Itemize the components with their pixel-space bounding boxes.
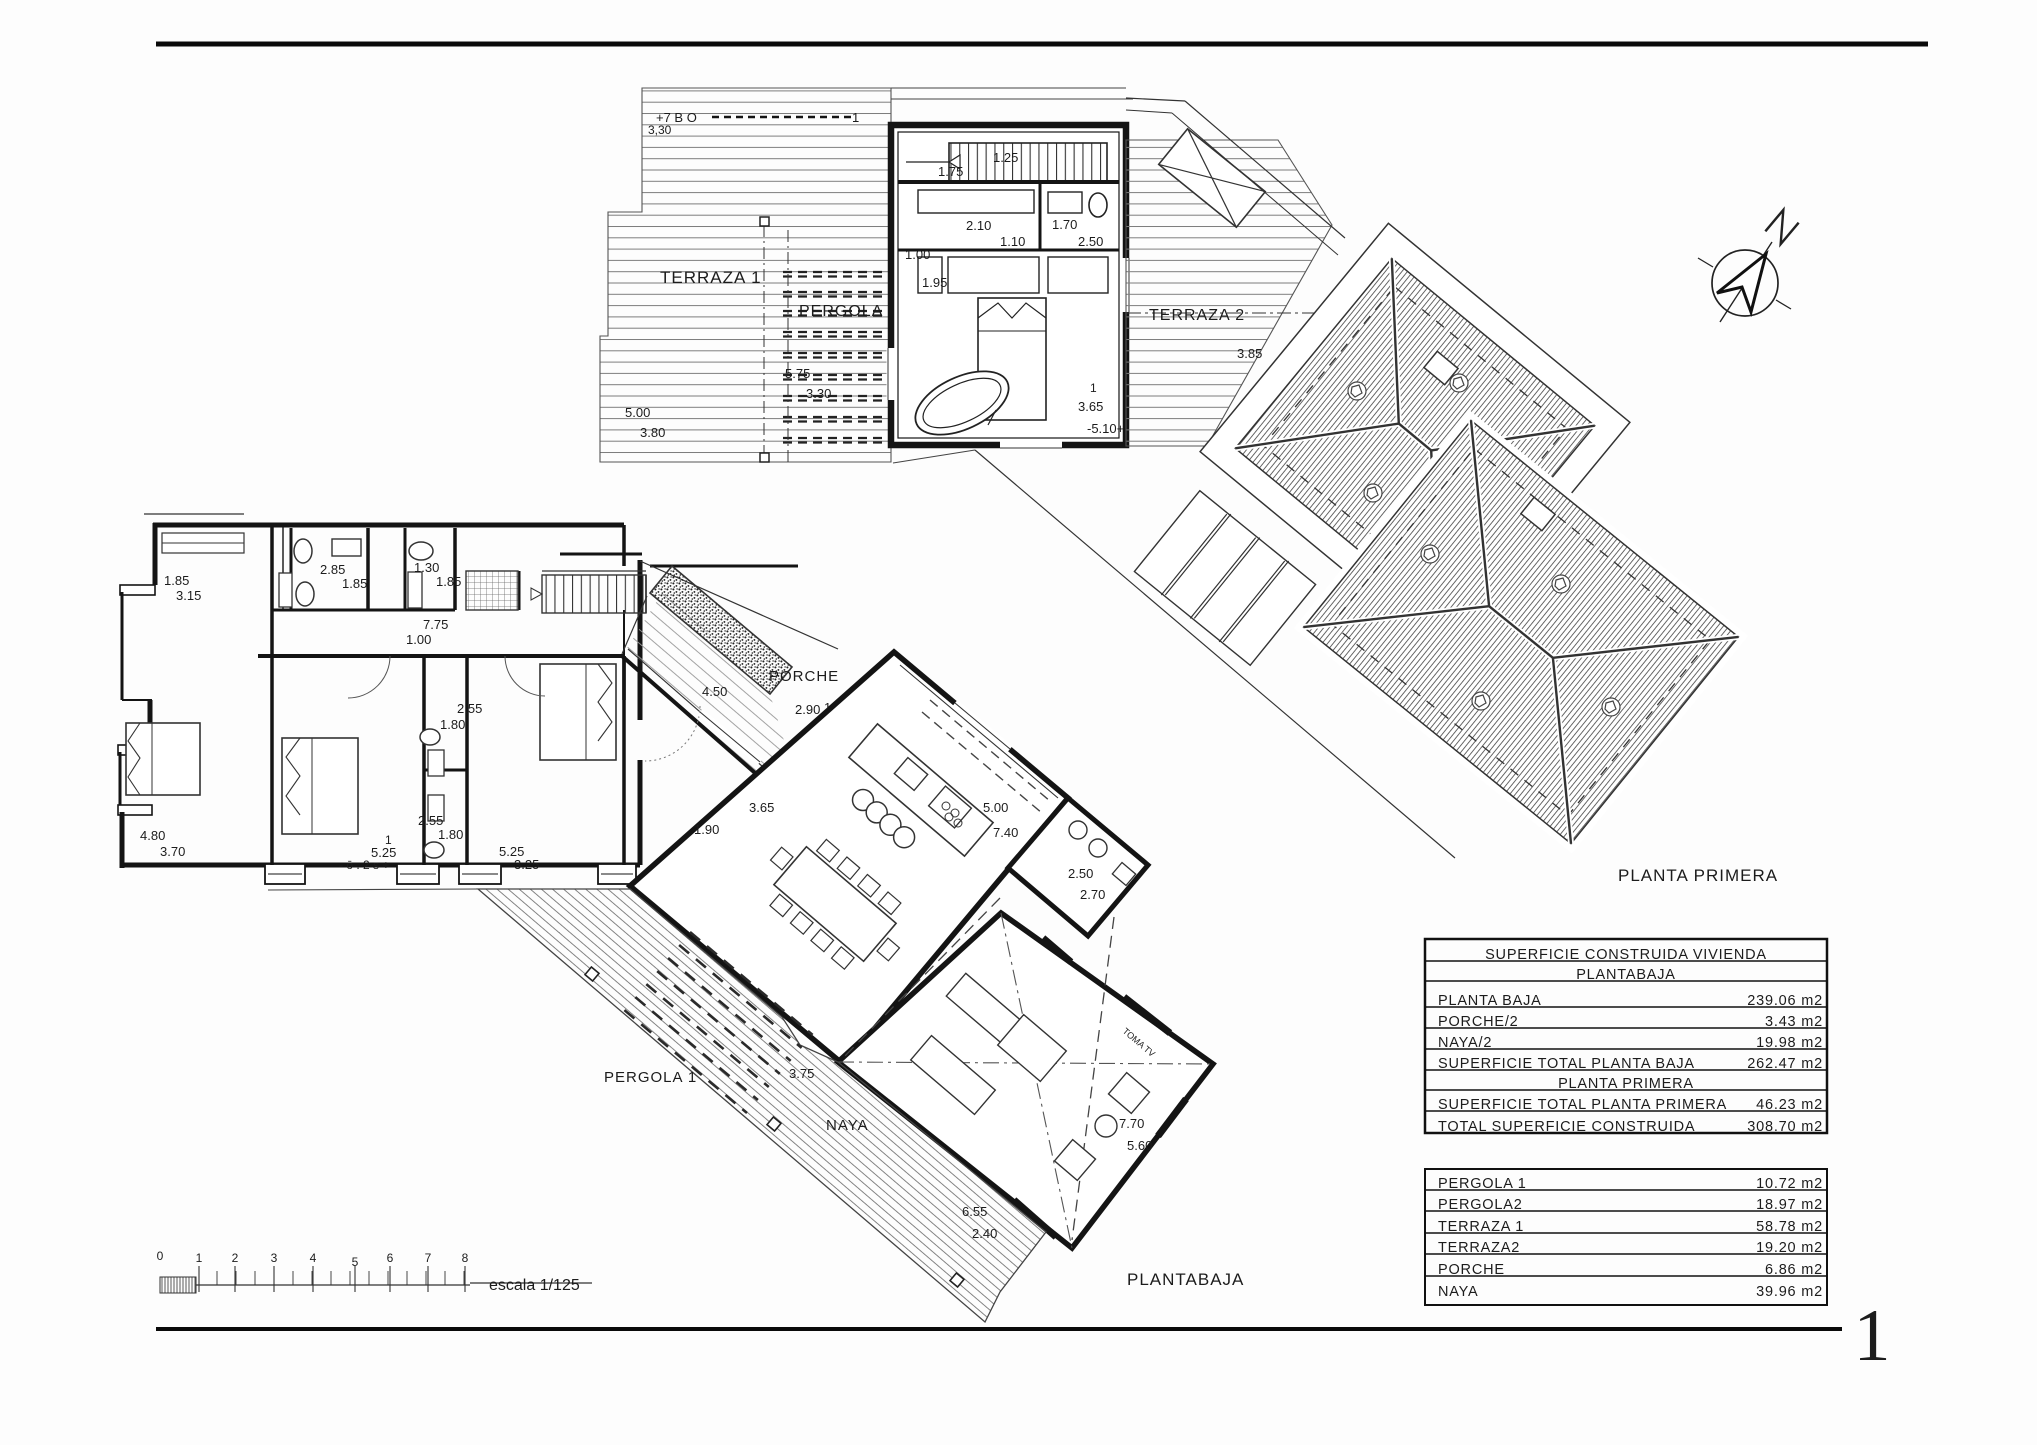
svg-text:6.55: 6.55 — [962, 1204, 987, 1219]
svg-text:1.75: 1.75 — [938, 164, 963, 179]
svg-text:SUPERFICIE TOTAL PLANTA BAJA: SUPERFICIE TOTAL PLANTA BAJA — [1438, 1056, 1695, 1072]
svg-text:1.80: 1.80 — [438, 827, 463, 842]
svg-text:239.06 m2: 239.06 m2 — [1747, 993, 1823, 1009]
svg-text:TERRAZA 2: TERRAZA 2 — [1149, 307, 1245, 324]
svg-text:PERGOLA 1: PERGOLA 1 — [604, 1069, 697, 1086]
svg-text:3.65: 3.65 — [1078, 399, 1103, 414]
svg-text:NAYA: NAYA — [826, 1117, 869, 1134]
svg-text:NAYA: NAYA — [1438, 1284, 1479, 1300]
svg-text:39.96 m2: 39.96 m2 — [1756, 1284, 1823, 1300]
svg-text:4.80: 4.80 — [140, 828, 165, 843]
svg-text:19.20 m2: 19.20 m2 — [1756, 1240, 1823, 1256]
svg-text:1.95: 1.95 — [922, 275, 947, 290]
svg-text:19.98 m2: 19.98 m2 — [1756, 1035, 1823, 1051]
svg-text:NAYA/2: NAYA/2 — [1438, 1035, 1492, 1051]
svg-text:-5.10+: -5.10+ — [1087, 421, 1124, 436]
svg-text:3,30: 3,30 — [648, 123, 672, 137]
svg-text:TERRAZA2: TERRAZA2 — [1438, 1240, 1520, 1256]
svg-text:1: 1 — [1854, 1295, 1891, 1377]
svg-text:3.85: 3.85 — [1237, 346, 1262, 361]
svg-text:PERGOLA2: PERGOLA2 — [1438, 1197, 1523, 1213]
svg-text:PLANTABAJA: PLANTABAJA — [1576, 967, 1676, 983]
svg-text:PERGOLA 2: PERGOLA 2 — [799, 303, 898, 320]
svg-text:262.47 m2: 262.47 m2 — [1747, 1056, 1823, 1072]
svg-text:46.23 m2: 46.23 m2 — [1756, 1097, 1823, 1113]
svg-text:2.50: 2.50 — [1078, 234, 1103, 249]
svg-text:TERRAZA 1: TERRAZA 1 — [660, 268, 762, 287]
svg-text:1.00: 1.00 — [905, 247, 930, 262]
svg-text:2.50: 2.50 — [1068, 866, 1093, 881]
svg-text:1.85: 1.85 — [436, 574, 461, 589]
svg-text:5.00: 5.00 — [983, 800, 1008, 815]
svg-text:3.15: 3.15 — [176, 588, 201, 603]
svg-text:1.90: 1.90 — [694, 822, 719, 837]
svg-text:PLANTA PRIMERA: PLANTA PRIMERA — [1558, 1076, 1694, 1092]
svg-text:2.70: 2.70 — [1080, 887, 1105, 902]
svg-text:2.85: 2.85 — [320, 562, 345, 577]
svg-text:4.50: 4.50 — [702, 684, 727, 699]
svg-text:18.97 m2: 18.97 m2 — [1756, 1197, 1823, 1213]
svg-text:- ō . 2 s +: - ō . 2 s + — [339, 858, 389, 872]
svg-text:2.10: 2.10 — [966, 218, 991, 233]
svg-text:1.80: 1.80 — [440, 717, 465, 732]
svg-text:7.70: 7.70 — [1119, 1116, 1144, 1131]
svg-text:TOTAL SUPERFICIE CONSTRUIDA: TOTAL SUPERFICIE CONSTRUIDA — [1438, 1119, 1695, 1135]
svg-text:1: 1 — [852, 110, 859, 125]
svg-text:PLANTA BAJA: PLANTA BAJA — [1438, 993, 1542, 1009]
svg-text:3.80: 3.80 — [640, 425, 665, 440]
svg-text:7.40: 7.40 — [993, 825, 1018, 840]
svg-text:7: 7 — [425, 1251, 432, 1265]
svg-text:1.30: 1.30 — [414, 560, 439, 575]
svg-text:0: 0 — [157, 1249, 164, 1263]
svg-text:3.43 m2: 3.43 m2 — [1765, 1014, 1823, 1030]
svg-text:2.55: 2.55 — [418, 813, 443, 828]
svg-text:2.40: 2.40 — [972, 1226, 997, 1241]
svg-text:5.75: 5.75 — [785, 366, 810, 381]
svg-text:PLANTABAJA: PLANTABAJA — [1127, 1270, 1244, 1289]
svg-text:1.85: 1.85 — [342, 576, 367, 591]
svg-text:1.70: 1.70 — [1052, 217, 1077, 232]
svg-text:PERGOLA 1: PERGOLA 1 — [1438, 1176, 1527, 1192]
svg-text:58.78 m2: 58.78 m2 — [1756, 1219, 1823, 1235]
svg-text:3.25: 3.25 — [514, 857, 539, 872]
svg-text:1.85: 1.85 — [164, 573, 189, 588]
svg-text:SUPERFICIE CONSTRUIDA VIVIENDA: SUPERFICIE CONSTRUIDA VIVIENDA — [1485, 947, 1767, 963]
svg-text:1.10: 1.10 — [1000, 234, 1025, 249]
svg-text:1.25: 1.25 — [993, 150, 1018, 165]
svg-text:3.70: 3.70 — [160, 844, 185, 859]
svg-text:PLANTA PRIMERA: PLANTA PRIMERA — [1618, 866, 1778, 885]
svg-text:1: 1 — [1090, 381, 1097, 395]
svg-text:308.70 m2: 308.70 m2 — [1747, 1119, 1823, 1135]
svg-text:2.55: 2.55 — [457, 701, 482, 716]
svg-text:3.65: 3.65 — [749, 800, 774, 815]
svg-text:6.86 m2: 6.86 m2 — [1765, 1262, 1823, 1278]
svg-text:PORCHE: PORCHE — [1438, 1262, 1505, 1278]
svg-text:2.90: 2.90 — [795, 702, 820, 717]
svg-text:7.75: 7.75 — [423, 617, 448, 632]
svg-text:10.72 m2: 10.72 m2 — [1756, 1176, 1823, 1192]
svg-text:5.00: 5.00 — [625, 405, 650, 420]
svg-text:8: 8 — [462, 1251, 469, 1265]
svg-text:TERRAZA 1: TERRAZA 1 — [1438, 1219, 1524, 1235]
svg-text:4: 4 — [310, 1251, 317, 1265]
svg-text:SUPERFICIE TOTAL PLANTA PRIMER: SUPERFICIE TOTAL PLANTA PRIMERA — [1438, 1097, 1727, 1113]
svg-text:1: 1 — [196, 1251, 203, 1265]
svg-text:3.30: 3.30 — [806, 386, 831, 401]
svg-text:3: 3 — [271, 1251, 278, 1265]
svg-text:3.75: 3.75 — [789, 1066, 814, 1081]
svg-text:2: 2 — [232, 1251, 239, 1265]
svg-text:PORCHE: PORCHE — [769, 668, 839, 685]
svg-text:5.60: 5.60 — [1127, 1138, 1152, 1153]
svg-text:1.00: 1.00 — [406, 632, 431, 647]
svg-text:6: 6 — [387, 1251, 394, 1265]
svg-text:PORCHE/2: PORCHE/2 — [1438, 1014, 1519, 1030]
svg-text:escala 1/125: escala 1/125 — [489, 1277, 580, 1294]
